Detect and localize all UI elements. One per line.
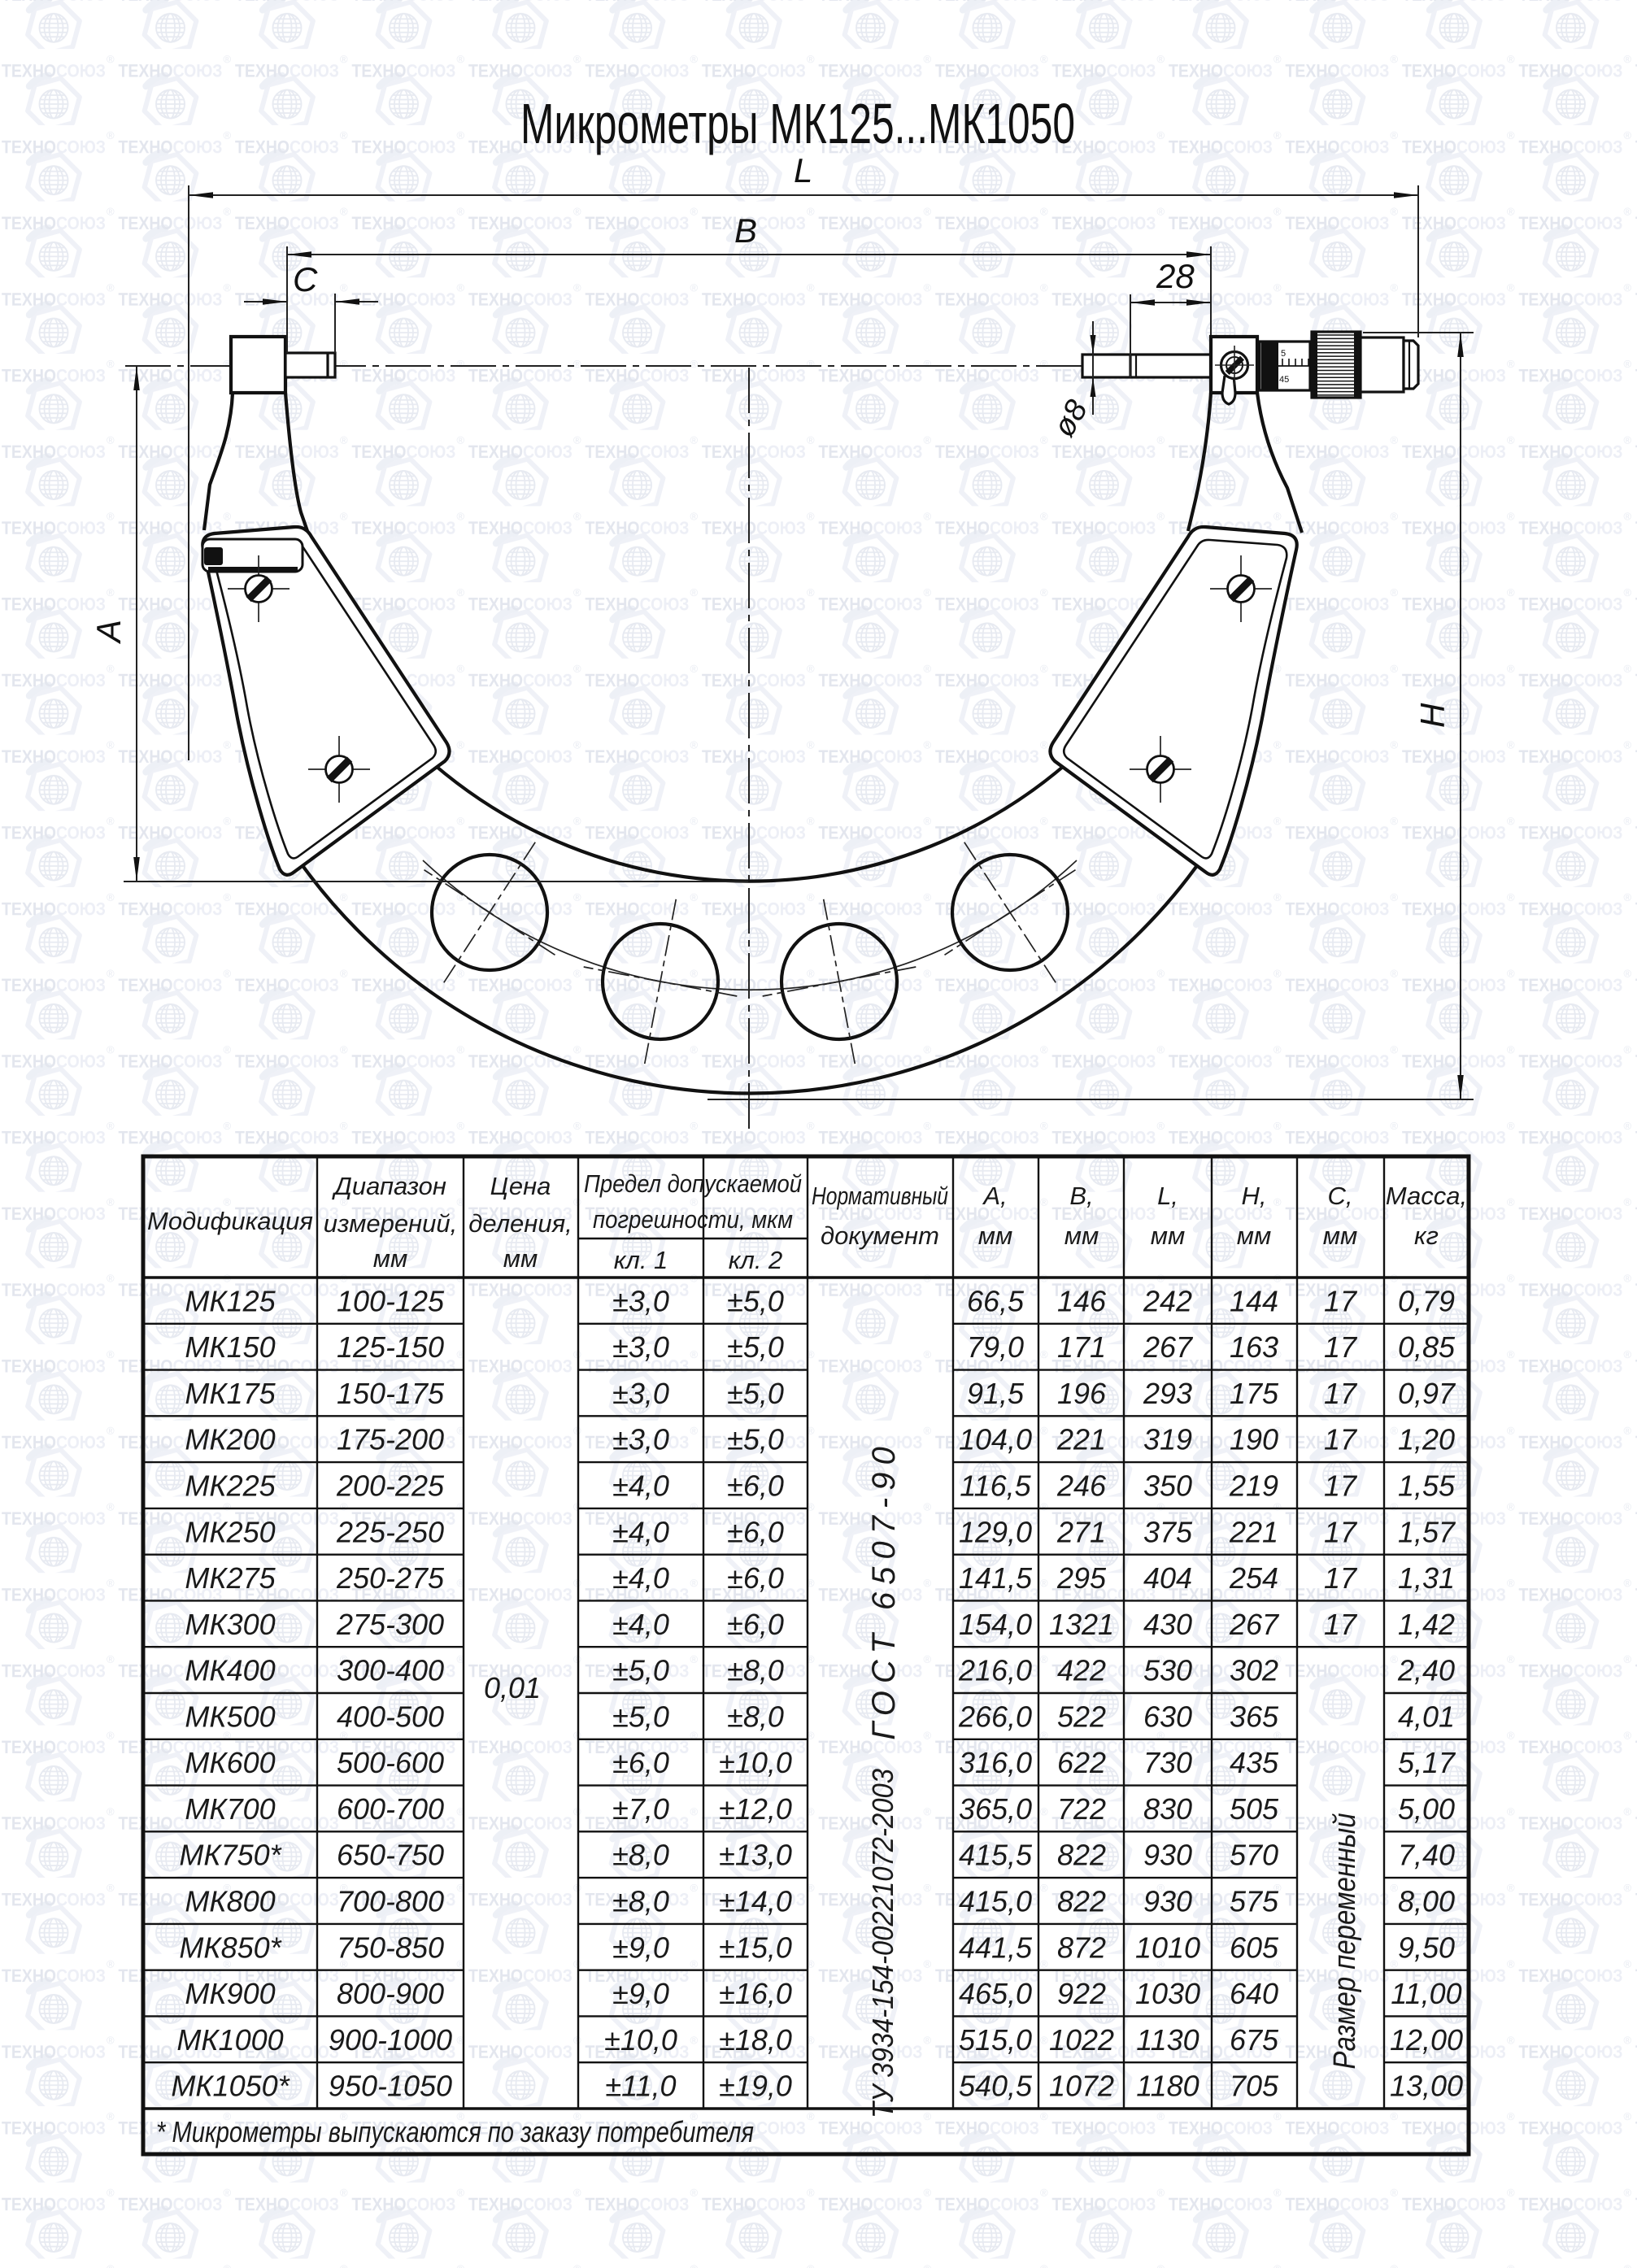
svg-text:540,5: 540,5	[959, 2070, 1033, 2103]
svg-text:Предел допускаемой: Предел допускаемой	[584, 1169, 802, 1198]
svg-text:А,: А,	[982, 1182, 1007, 1210]
svg-text:250-275: 250-275	[336, 1561, 445, 1595]
svg-text:300-400: 300-400	[337, 1654, 444, 1687]
svg-text:1321: 1321	[1049, 1608, 1114, 1641]
svg-text:±3,0: ±3,0	[612, 1377, 669, 1410]
svg-text:7,40: 7,40	[1398, 1839, 1455, 1872]
svg-text:415,0: 415,0	[959, 1885, 1032, 1918]
svg-text:0,85: 0,85	[1398, 1330, 1456, 1364]
svg-text:254: 254	[1229, 1561, 1278, 1595]
svg-text:465,0: 465,0	[959, 1977, 1032, 2010]
svg-text:H: H	[1413, 703, 1452, 728]
svg-text:600-700: 600-700	[337, 1792, 444, 1826]
svg-text:мм: мм	[978, 1221, 1013, 1250]
svg-text:144: 144	[1230, 1284, 1278, 1317]
svg-text:±5,0: ±5,0	[612, 1700, 669, 1733]
svg-text:±16,0: ±16,0	[719, 1977, 792, 2010]
svg-text:±9,0: ±9,0	[612, 1931, 669, 1964]
svg-text:1,55: 1,55	[1398, 1469, 1456, 1503]
svg-text:±3,0: ±3,0	[612, 1423, 669, 1456]
svg-text:8,00: 8,00	[1398, 1885, 1455, 1918]
svg-text:С,: С,	[1328, 1182, 1353, 1210]
svg-text:630: 630	[1143, 1700, 1192, 1733]
svg-text:±4,0: ±4,0	[612, 1608, 669, 1641]
svg-text:700-800: 700-800	[337, 1885, 444, 1918]
svg-text:675: 675	[1230, 2023, 1279, 2057]
svg-text:Н,: Н,	[1242, 1182, 1267, 1210]
svg-text:79,0: 79,0	[967, 1330, 1024, 1364]
svg-text:17: 17	[1324, 1330, 1358, 1364]
svg-text:125-150: 125-150	[337, 1330, 444, 1364]
svg-text:650-750: 650-750	[337, 1839, 444, 1872]
svg-text:17: 17	[1324, 1608, 1358, 1641]
svg-text:822: 822	[1057, 1885, 1106, 1918]
svg-text:1130: 1130	[1136, 2023, 1199, 2057]
svg-text:225-250: 225-250	[336, 1515, 444, 1548]
svg-text:±15,0: ±15,0	[719, 1931, 792, 1964]
svg-text:МК900: МК900	[185, 1977, 275, 2010]
svg-text:±11,0: ±11,0	[605, 2070, 676, 2103]
svg-text:242: 242	[1143, 1284, 1192, 1317]
svg-text:±6,0: ±6,0	[727, 1469, 784, 1503]
svg-text:872: 872	[1057, 1931, 1106, 1964]
svg-text:кл. 2: кл. 2	[729, 1246, 783, 1274]
svg-text:В,: В,	[1069, 1182, 1093, 1210]
svg-text:±8,0: ±8,0	[727, 1700, 784, 1733]
svg-text:мм: мм	[1064, 1221, 1099, 1250]
svg-text:ГОСТ 6507-90: ГОСТ 6507-90	[866, 1439, 902, 1739]
svg-text:±13,0: ±13,0	[719, 1839, 792, 1872]
svg-text:мм: мм	[1151, 1221, 1186, 1250]
svg-text:116,5: 116,5	[960, 1469, 1031, 1503]
svg-text:129,0: 129,0	[959, 1515, 1032, 1548]
svg-text:L,: L,	[1157, 1182, 1178, 1210]
svg-text:605: 605	[1230, 1931, 1279, 1964]
svg-text:293: 293	[1143, 1377, 1192, 1410]
svg-text:196: 196	[1057, 1377, 1107, 1410]
svg-text:930: 930	[1143, 1885, 1192, 1918]
svg-text:±5,0: ±5,0	[727, 1284, 784, 1317]
svg-text:950-1050: 950-1050	[329, 2070, 452, 2103]
svg-text:Модификация: Модификация	[147, 1207, 313, 1235]
svg-text:1,20: 1,20	[1398, 1423, 1455, 1456]
svg-text:±3,0: ±3,0	[612, 1284, 669, 1317]
svg-text:530: 530	[1143, 1654, 1192, 1687]
svg-text:266,0: 266,0	[958, 1700, 1032, 1733]
svg-text:±5,0: ±5,0	[727, 1423, 784, 1456]
svg-text:622: 622	[1057, 1746, 1106, 1779]
svg-text:МК750*: МК750*	[179, 1839, 281, 1872]
svg-text:5,00: 5,00	[1398, 1792, 1455, 1826]
svg-text:±5,0: ±5,0	[727, 1377, 784, 1410]
svg-text:216,0: 216,0	[958, 1654, 1032, 1687]
svg-text:МК850*: МК850*	[179, 1931, 281, 1964]
svg-text:±5,0: ±5,0	[727, 1330, 784, 1364]
svg-text:±4,0: ±4,0	[612, 1469, 669, 1503]
svg-text:ТУ 3934-154-00221072-2003: ТУ 3934-154-00221072-2003	[866, 1769, 899, 2118]
svg-text:319: 319	[1143, 1423, 1192, 1456]
svg-text:9,50: 9,50	[1398, 1931, 1455, 1964]
svg-text:документ: документ	[821, 1221, 939, 1250]
svg-text:1,57: 1,57	[1398, 1515, 1456, 1548]
svg-text:640: 640	[1230, 1977, 1278, 2010]
svg-text:1010: 1010	[1135, 1931, 1200, 1964]
svg-text:±6,0: ±6,0	[727, 1561, 784, 1595]
svg-text:441,5: 441,5	[959, 1931, 1033, 1964]
svg-text:267: 267	[1143, 1330, 1194, 1364]
svg-text:B: B	[734, 211, 757, 250]
svg-text:1,42: 1,42	[1398, 1608, 1455, 1641]
svg-text:5: 5	[1281, 349, 1286, 359]
svg-text:500-600: 500-600	[337, 1746, 444, 1779]
svg-text:800-900: 800-900	[337, 1977, 444, 2010]
svg-text:163: 163	[1230, 1330, 1278, 1364]
svg-text:822: 822	[1057, 1839, 1106, 1872]
svg-text:Размер переменный: Размер переменный	[1328, 1813, 1362, 2070]
svg-text:1022: 1022	[1049, 2023, 1114, 2057]
svg-text:±4,0: ±4,0	[612, 1515, 669, 1548]
svg-text:±10,0: ±10,0	[719, 1746, 792, 1779]
svg-text:4,01: 4,01	[1398, 1700, 1455, 1733]
svg-text:МК175: МК175	[185, 1377, 276, 1410]
svg-text:±4,0: ±4,0	[612, 1561, 669, 1595]
svg-text:МК225: МК225	[185, 1469, 276, 1503]
svg-text:900-1000: 900-1000	[329, 2023, 452, 2057]
svg-text:деления,: деления,	[468, 1209, 573, 1238]
svg-text:±9,0: ±9,0	[612, 1977, 669, 2010]
svg-text:±7,0: ±7,0	[612, 1792, 669, 1826]
svg-text:мм: мм	[373, 1244, 408, 1273]
svg-text:17: 17	[1324, 1469, 1358, 1503]
svg-text:±14,0: ±14,0	[719, 1885, 792, 1918]
svg-text:МК125: МК125	[185, 1284, 276, 1317]
svg-text:Нормативный: Нормативный	[812, 1182, 948, 1210]
svg-text:МК600: МК600	[185, 1746, 275, 1779]
svg-text:175-200: 175-200	[337, 1423, 444, 1456]
svg-text:МК800: МК800	[185, 1885, 275, 1918]
svg-text:мм: мм	[1323, 1221, 1358, 1250]
svg-text:кг: кг	[1414, 1221, 1439, 1250]
svg-text:13,00: 13,00	[1390, 2070, 1463, 2103]
svg-text:0,01: 0,01	[484, 1671, 541, 1704]
svg-text:кл. 1: кл. 1	[614, 1246, 668, 1274]
svg-text:171: 171	[1057, 1330, 1106, 1364]
svg-text:430: 430	[1143, 1608, 1192, 1641]
svg-text:219: 219	[1229, 1469, 1278, 1503]
svg-text:МК500: МК500	[185, 1700, 275, 1733]
svg-text:0,97: 0,97	[1398, 1377, 1456, 1410]
svg-text:мм: мм	[1237, 1221, 1272, 1250]
svg-text:141,5: 141,5	[959, 1561, 1033, 1595]
svg-text:930: 930	[1143, 1839, 1192, 1872]
svg-text:146: 146	[1057, 1284, 1107, 1317]
svg-text:350: 350	[1143, 1469, 1192, 1503]
svg-text:Цена: Цена	[490, 1172, 551, 1200]
svg-text:830: 830	[1143, 1792, 1192, 1826]
svg-text:316,0: 316,0	[959, 1746, 1032, 1779]
svg-text:221: 221	[1229, 1515, 1278, 1548]
svg-text:575: 575	[1230, 1885, 1279, 1918]
svg-text:Диапазон: Диапазон	[332, 1172, 446, 1200]
svg-text:±5,0: ±5,0	[612, 1654, 669, 1687]
svg-text:750-850: 750-850	[337, 1931, 444, 1964]
svg-text:0,79: 0,79	[1398, 1284, 1455, 1317]
svg-text:МК400: МК400	[185, 1654, 275, 1687]
svg-text:221: 221	[1056, 1423, 1106, 1456]
svg-text:190: 190	[1230, 1423, 1278, 1456]
svg-text:66,5: 66,5	[967, 1284, 1025, 1317]
svg-text:* Микрометры выпускаются по за: * Микрометры выпускаются по заказу потре…	[156, 2115, 754, 2148]
svg-text:17: 17	[1324, 1377, 1358, 1410]
svg-text:±8,0: ±8,0	[612, 1885, 669, 1918]
svg-text:измерений,: измерений,	[324, 1209, 457, 1238]
svg-text:275-300: 275-300	[336, 1608, 444, 1641]
svg-text:17: 17	[1324, 1561, 1358, 1595]
svg-text:1072: 1072	[1049, 2070, 1114, 2103]
svg-text:МК250: МК250	[185, 1515, 275, 1548]
svg-text:522: 522	[1057, 1700, 1106, 1733]
svg-text:±6,0: ±6,0	[727, 1515, 784, 1548]
svg-text:91,5: 91,5	[967, 1377, 1025, 1410]
svg-text:28: 28	[1156, 257, 1195, 295]
svg-text:404: 404	[1143, 1561, 1192, 1595]
svg-text:±18,0: ±18,0	[719, 2023, 792, 2057]
svg-text:1,31: 1,31	[1398, 1561, 1455, 1595]
svg-text:302: 302	[1230, 1654, 1278, 1687]
svg-text:17: 17	[1324, 1423, 1358, 1456]
svg-text:154,0: 154,0	[959, 1608, 1032, 1641]
svg-text:295: 295	[1056, 1561, 1107, 1595]
svg-text:МК300: МК300	[185, 1608, 275, 1641]
svg-text:A: A	[89, 620, 128, 645]
svg-text:±12,0: ±12,0	[719, 1792, 792, 1826]
svg-text:±3,0: ±3,0	[612, 1330, 669, 1364]
svg-text:C: C	[293, 260, 318, 298]
svg-text:11,00: 11,00	[1391, 1977, 1461, 2010]
svg-text:435: 435	[1230, 1746, 1279, 1779]
svg-text:1180: 1180	[1136, 2070, 1199, 2103]
svg-text:±6,0: ±6,0	[612, 1746, 669, 1779]
svg-text:100-125: 100-125	[337, 1284, 445, 1317]
svg-text:1030: 1030	[1135, 1977, 1200, 2010]
svg-text:104,0: 104,0	[959, 1423, 1032, 1456]
svg-text:505: 505	[1230, 1792, 1279, 1826]
svg-text:Микрометры МК125...МК1050: Микрометры МК125...МК1050	[520, 92, 1075, 155]
svg-text:±6,0: ±6,0	[727, 1608, 784, 1641]
svg-text:722: 722	[1057, 1792, 1106, 1826]
svg-text:17: 17	[1324, 1284, 1358, 1317]
svg-text:415,5: 415,5	[959, 1839, 1033, 1872]
svg-text:±10,0: ±10,0	[604, 2023, 677, 2057]
svg-text:375: 375	[1143, 1515, 1193, 1548]
svg-text:2,40: 2,40	[1397, 1654, 1455, 1687]
svg-text:мм: мм	[503, 1244, 538, 1273]
svg-text:5,17: 5,17	[1398, 1746, 1456, 1779]
svg-text:200-225: 200-225	[336, 1469, 445, 1503]
svg-text:МК200: МК200	[185, 1423, 275, 1456]
svg-text:246: 246	[1056, 1469, 1107, 1503]
svg-text:погрешности, мкм: погрешности, мкм	[593, 1205, 793, 1234]
svg-text:Масса,: Масса,	[1386, 1182, 1467, 1210]
svg-text:±8,0: ±8,0	[727, 1654, 784, 1687]
svg-text:МК275: МК275	[185, 1561, 276, 1595]
svg-text:422: 422	[1057, 1654, 1106, 1687]
svg-text:400-500: 400-500	[337, 1700, 444, 1733]
svg-text:365,0: 365,0	[959, 1792, 1032, 1826]
svg-text:12,00: 12,00	[1390, 2023, 1463, 2057]
svg-text:267: 267	[1229, 1608, 1280, 1641]
svg-text:150-175: 150-175	[337, 1377, 445, 1410]
svg-text:45: 45	[1279, 375, 1289, 385]
svg-text:МК1000: МК1000	[176, 2023, 283, 2057]
svg-text:L: L	[794, 151, 812, 189]
svg-text:570: 570	[1230, 1839, 1278, 1872]
svg-text:МК150: МК150	[185, 1330, 275, 1364]
svg-text:365: 365	[1230, 1700, 1279, 1733]
svg-text:МК1050*: МК1050*	[171, 2070, 290, 2103]
svg-text:271: 271	[1056, 1515, 1106, 1548]
svg-text:515,0: 515,0	[959, 2023, 1032, 2057]
svg-text:±19,0: ±19,0	[719, 2070, 792, 2103]
svg-text:175: 175	[1230, 1377, 1279, 1410]
svg-text:922: 922	[1057, 1977, 1106, 2010]
svg-text:МК700: МК700	[185, 1792, 275, 1826]
svg-text:730: 730	[1143, 1746, 1192, 1779]
svg-text:±8,0: ±8,0	[612, 1839, 669, 1872]
svg-text:17: 17	[1324, 1515, 1358, 1548]
svg-text:705: 705	[1230, 2070, 1279, 2103]
